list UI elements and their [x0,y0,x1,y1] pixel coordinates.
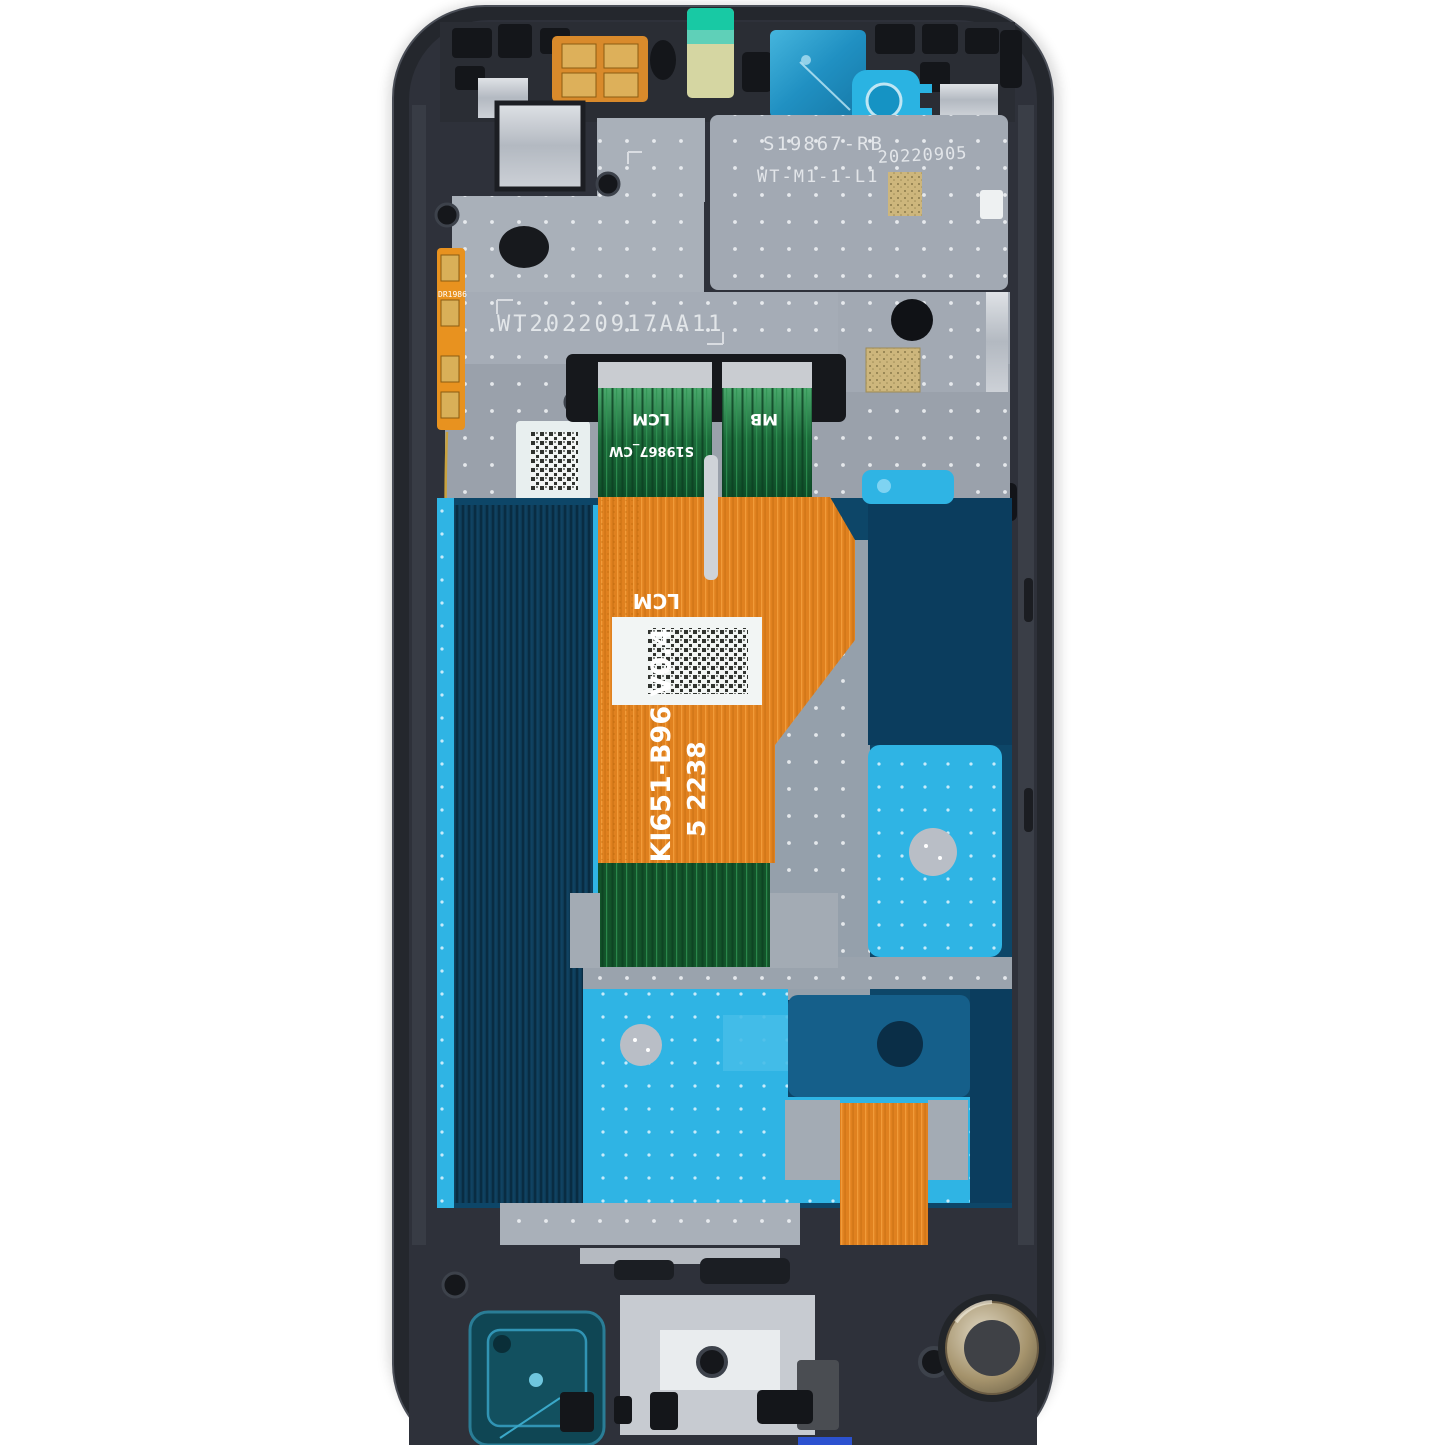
dark-blue-block [788,995,970,1097]
left-rim-groove [412,105,426,1355]
vibration-motor [938,1294,1046,1402]
right-rim-groove [1018,105,1034,1355]
teal-protective-sticker [687,8,734,98]
display-assembly-photo: S19867-RB 20220905 WT-M1-1-L1 WT20220917… [0,0,1445,1445]
model-code-marking: WT-M1-1-L1 [757,167,879,187]
shield-square [497,103,583,189]
adhesive-patch-bottom [583,989,801,1203]
camera-window-film [770,30,866,118]
lcm-flex-label: LCM [632,410,670,429]
board-id-marking: S19867-RB [763,133,884,155]
mb-connector [722,362,812,388]
speckle-sticker [888,172,922,216]
datamatrix-sticker [516,421,590,501]
lcd-back-panel [454,505,593,1203]
flex-stiffener [704,455,718,580]
main-flex-lcm-label: LCM [633,589,680,613]
main-flex-part-number: SKI651-B96 V0.4 [646,628,677,882]
metal-patch [940,84,998,116]
lcm-connector [598,362,712,388]
flex-datamatrix-label [612,617,762,705]
product-photo-scene: S19867-RB 20220905 WT-M1-1-L1 WT20220917… [0,0,1445,1445]
flex-code-label: S19867_CW [609,443,694,458]
adhesive-patch-right [868,745,1002,957]
side-button-slot [1024,578,1033,622]
gold-contact-pad [866,348,920,392]
main-flex-lot: 5 2238 [682,741,711,837]
frame-serial-marking: WT20220917AA11 [497,312,724,337]
side-button-slot [1024,788,1033,832]
earpiece-flex-contacts [552,36,648,102]
side-flex-code: DR1986 [438,290,467,299]
flex-clamp [570,893,600,968]
white-tab-sticker [980,190,1003,219]
adhesive-tab [862,470,954,504]
flex-clamp [770,893,838,968]
sensor-hole [891,299,933,341]
flex-clamp [785,1100,840,1180]
mb-flex-label: MB [750,410,778,429]
mic-hole [499,226,549,268]
blue-pull-tab [798,1437,852,1445]
flex-clamp [928,1100,968,1180]
